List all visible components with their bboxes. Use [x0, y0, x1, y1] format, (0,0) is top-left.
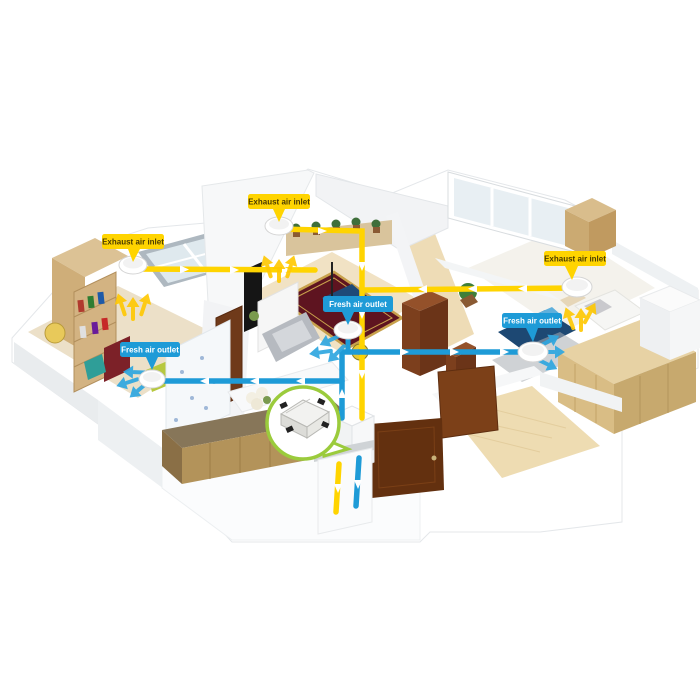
exterior-duct-wall: [318, 448, 372, 534]
fresh-diffuser-bedroom: [518, 342, 548, 362]
svg-text:Fresh air outlet: Fresh air outlet: [329, 300, 387, 309]
exhaust-diffuser-bedroom: [562, 277, 592, 297]
right-white-block: [640, 286, 700, 360]
svg-text:Exhaust air inlet: Exhaust air inlet: [248, 198, 310, 207]
svg-text:Fresh air outlet: Fresh air outlet: [503, 317, 561, 326]
ventilation-floorplan-diagram: Exhaust air inlet Exhaust air inlet Exha…: [0, 0, 700, 700]
svg-text:Exhaust air inlet: Exhaust air inlet: [102, 238, 164, 247]
wall-clock: [45, 323, 65, 343]
floorplan-canvas: Exhaust air inlet Exhaust air inlet Exha…: [0, 0, 700, 700]
balcony-cabinet: [565, 198, 616, 258]
svg-text:Exhaust air inlet: Exhaust air inlet: [544, 255, 606, 264]
svg-text:Fresh air outlet: Fresh air outlet: [121, 346, 179, 355]
entrance: [370, 418, 444, 498]
spare-room-door: [438, 366, 498, 438]
fresh-diffuser-study: [139, 370, 165, 388]
